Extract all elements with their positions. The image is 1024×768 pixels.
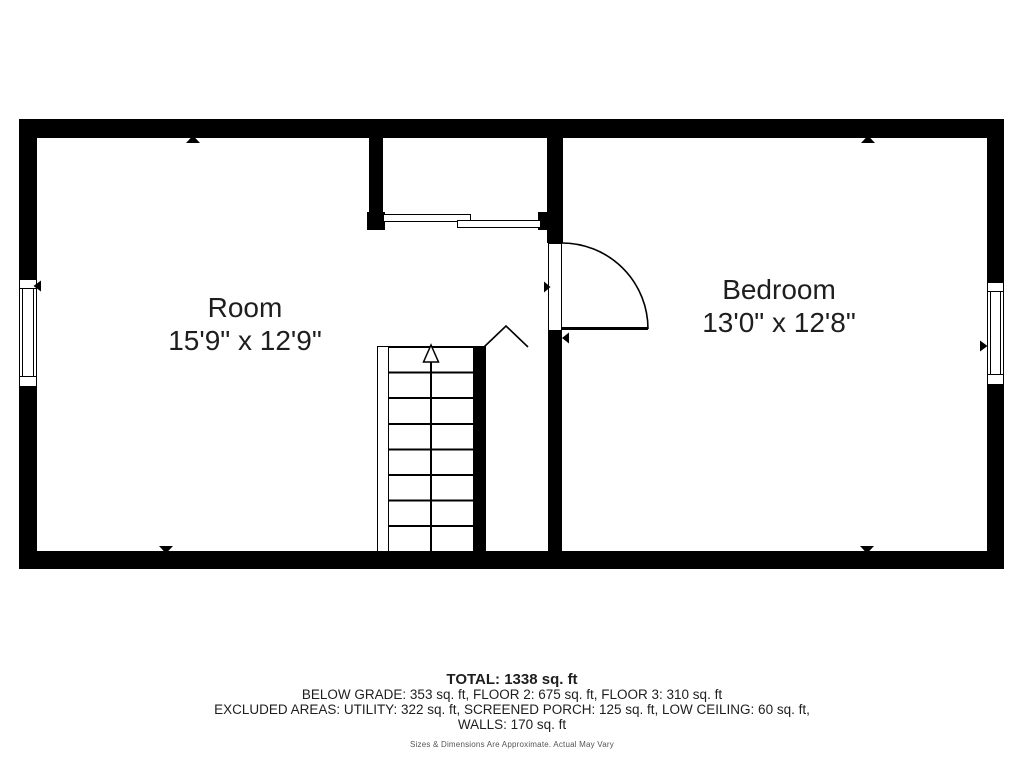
- total-area: TOTAL: 1338 sq. ft: [0, 672, 1024, 687]
- room-name: Bedroom: [654, 273, 904, 306]
- plan-overlay: [0, 0, 1024, 768]
- marker-bottom-left-icon: [159, 546, 173, 554]
- marker-bottom-right-icon: [860, 546, 874, 554]
- room-label-bedroom: Bedroom 13'0" x 12'8": [654, 273, 904, 339]
- marker-door-hinge-icon: [562, 333, 569, 344]
- floor-areas: BELOW GRADE: 353 sq. ft, FLOOR 2: 675 sq…: [0, 687, 1024, 702]
- room-dimensions: 13'0" x 12'8": [654, 306, 904, 339]
- room-dimensions: 15'9" x 12'9": [120, 324, 370, 357]
- marker-door-icon: [544, 282, 551, 293]
- marker-top-right-icon: [861, 136, 875, 144]
- marker-window-right-icon: [980, 341, 988, 352]
- excluded-areas-cont: WALLS: 170 sq. ft: [0, 717, 1024, 732]
- room-label-left: Room 15'9" x 12'9": [120, 291, 370, 357]
- opening-chevron-icon: [484, 326, 528, 347]
- room-name: Room: [120, 291, 370, 324]
- disclaimer-text: Sizes & Dimensions Are Approximate. Actu…: [0, 740, 1024, 749]
- area-summary: TOTAL: 1338 sq. ft BELOW GRADE: 353 sq. …: [0, 672, 1024, 749]
- excluded-areas: EXCLUDED AREAS: UTILITY: 322 sq. ft, SCR…: [0, 702, 1024, 717]
- marker-window-left-icon: [34, 281, 42, 292]
- floor-plan-page: Room 15'9" x 12'9" Bedroom 13'0" x 12'8"…: [0, 0, 1024, 768]
- marker-top-left-icon: [186, 136, 200, 144]
- door-swing-arc: [562, 243, 648, 329]
- stair-up-arrow-icon: [424, 345, 439, 362]
